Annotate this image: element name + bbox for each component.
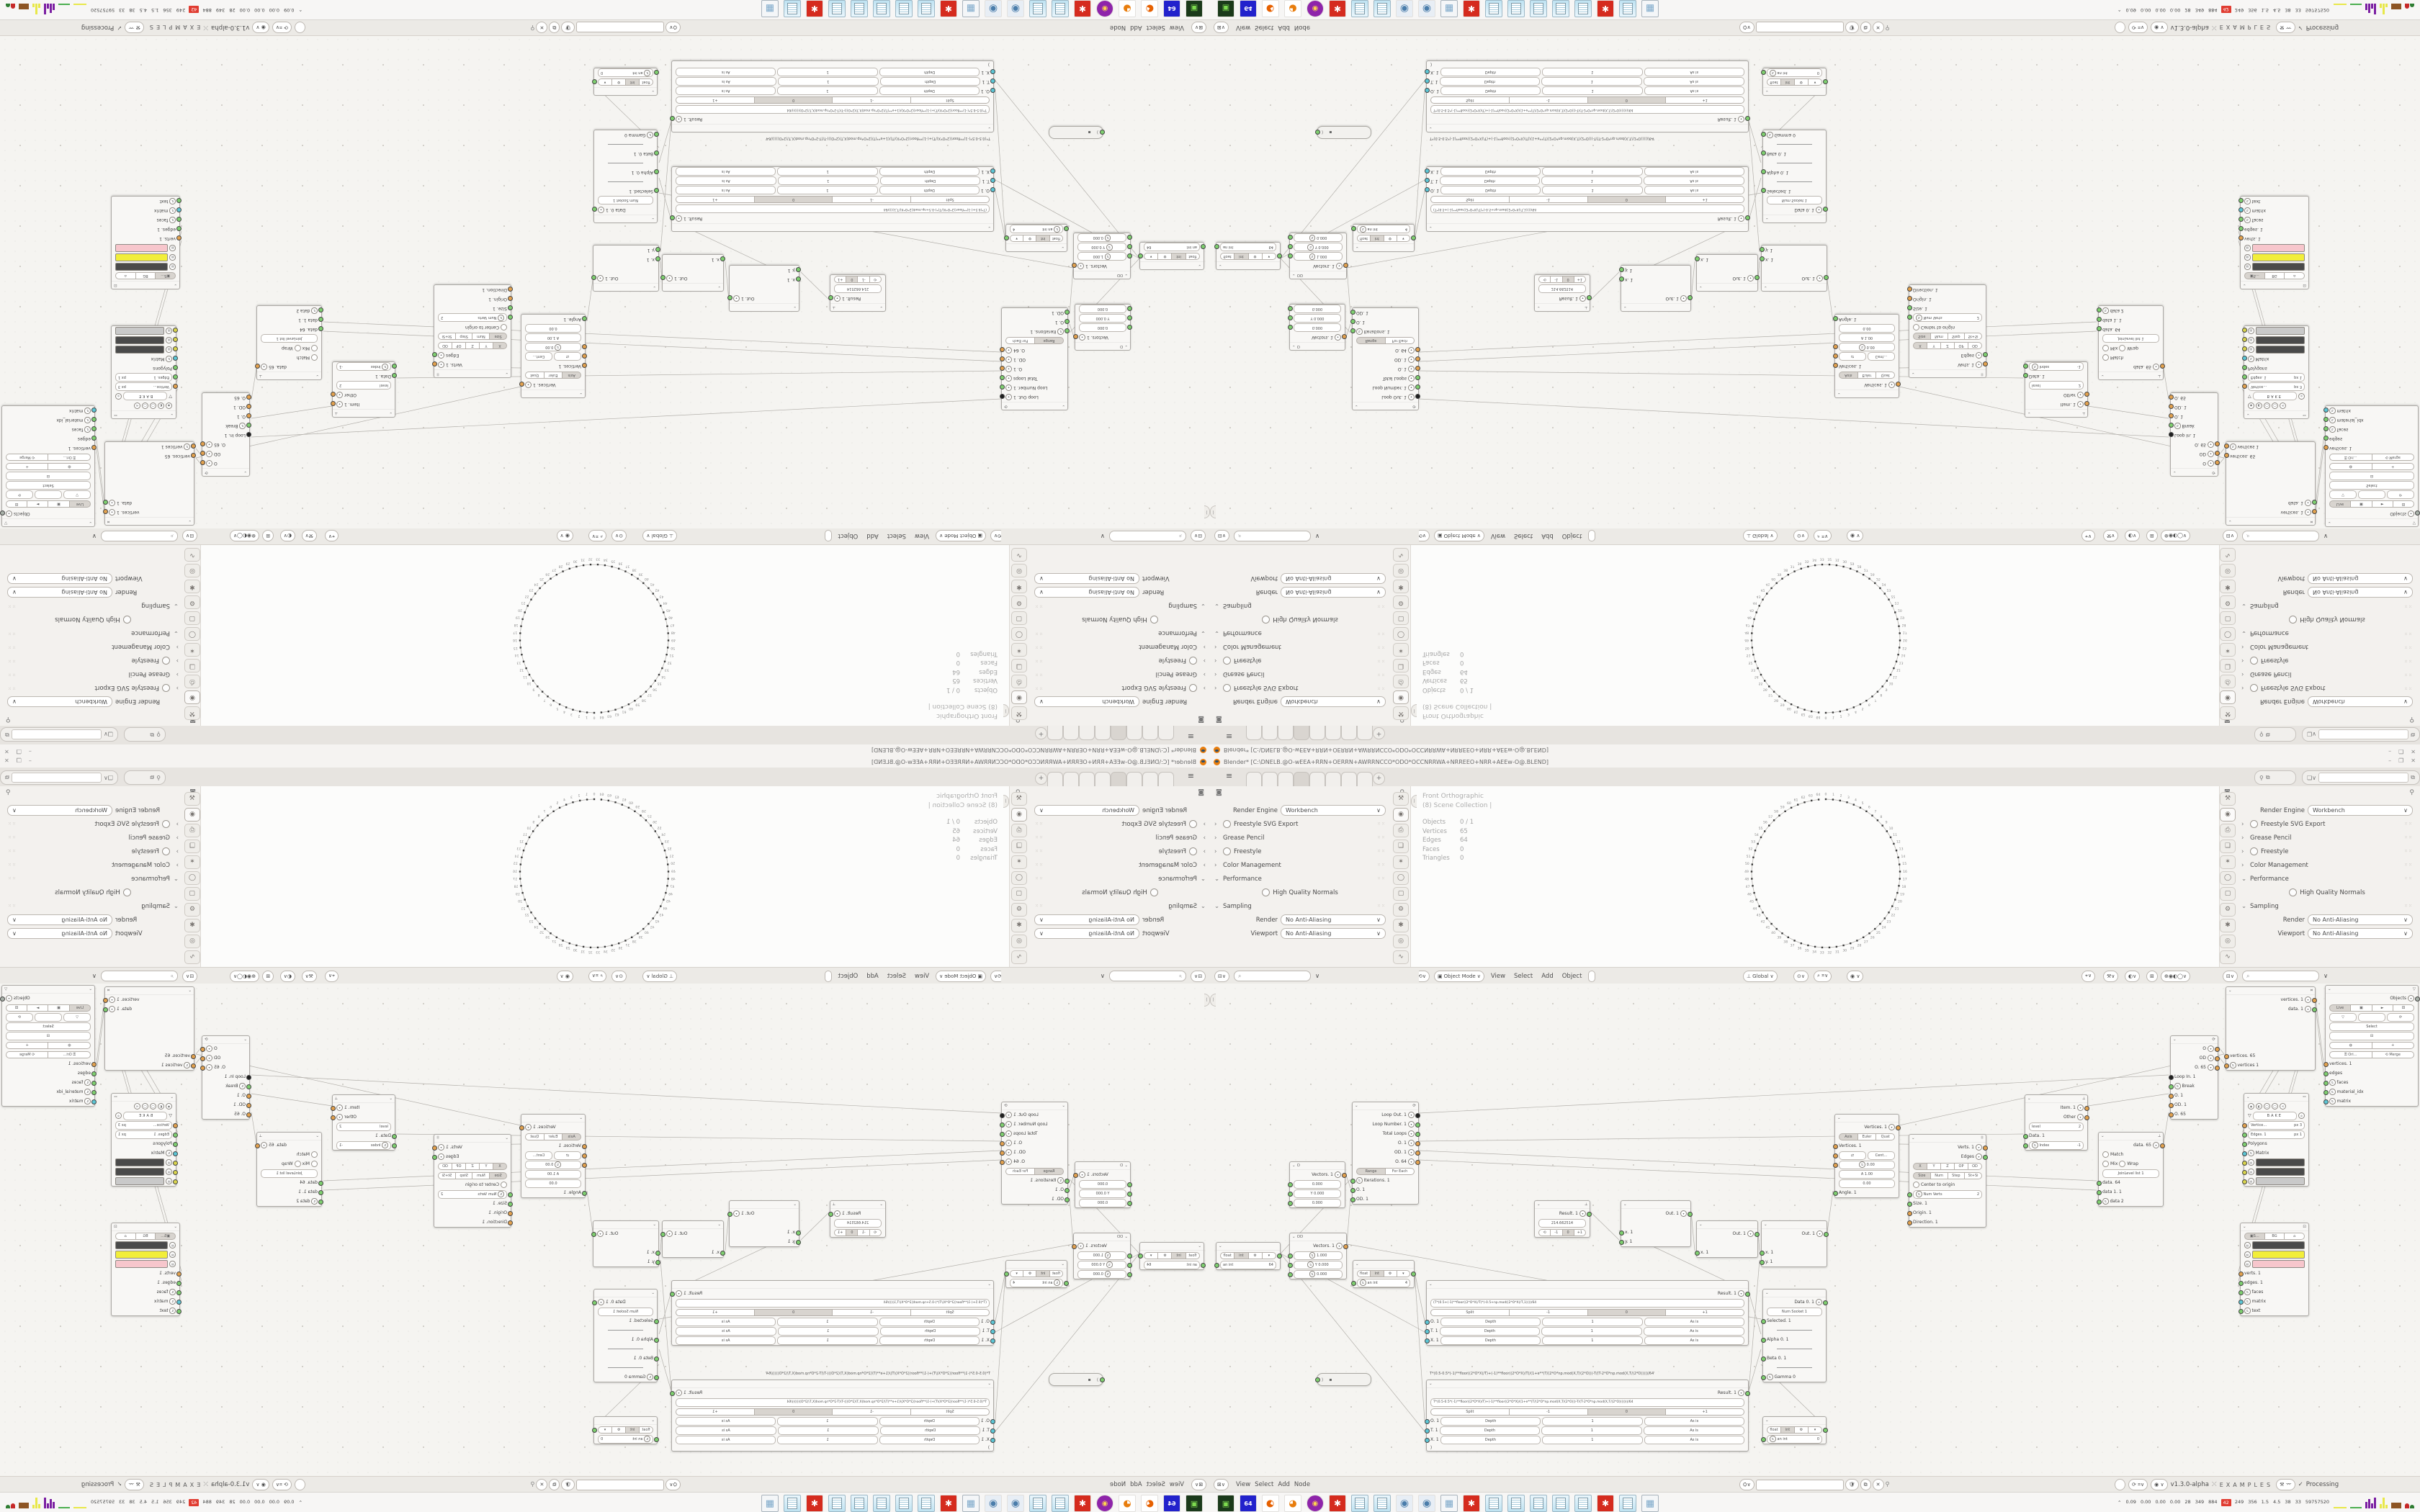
color-swatch[interactable]	[2256, 1177, 2305, 1185]
socket-r[interactable]	[1824, 275, 1829, 280]
widget-pill[interactable]: 1	[1541, 177, 1642, 186]
swatch-options-icon[interactable]: ▤	[166, 337, 173, 343]
properties-tab-icon[interactable]: ✱	[1011, 580, 1027, 593]
socket-l[interactable]	[654, 70, 659, 75]
snap-group[interactable]: ⌕ ⌗∨	[588, 531, 606, 542]
drag-value-icon[interactable]: ⇅	[2230, 1062, 2236, 1068]
button--[interactable]: ⚙	[1157, 1252, 1171, 1259]
node-header[interactable]: ⌄⌗	[105, 987, 194, 995]
collapsed-node[interactable]: ⟩▪	[1317, 1373, 1371, 1386]
widget-pill[interactable]: As is	[1644, 1417, 1744, 1426]
socket-l[interactable]	[2238, 1272, 2244, 1277]
socket-l[interactable]	[1761, 188, 1766, 193]
button-0[interactable]: 0	[754, 97, 833, 104]
collapse-chevron-icon[interactable]: ⌄	[651, 1291, 655, 1295]
drag-value-icon[interactable]: ⇅	[2244, 1308, 2251, 1314]
taskbar-icon-gearred[interactable]	[1074, 0, 1091, 17]
color-swatch[interactable]	[2256, 1158, 2305, 1166]
output-menu-icon[interactable]: ▾	[206, 451, 212, 457]
swatch-options-icon[interactable]: ▤	[2244, 1242, 2251, 1248]
button--1[interactable]: -1	[833, 1408, 911, 1416]
fake-user-icon[interactable]: 🛡	[561, 22, 575, 33]
node-math-power2[interactable]: ⌄Out. 1▾x. 1	[1696, 254, 1758, 292]
socket-l[interactable]	[1288, 1201, 1293, 1206]
socket-r[interactable]	[1000, 366, 1005, 371]
section-collapsed-icon[interactable]: ›	[2241, 848, 2247, 855]
socket-l[interactable]	[1833, 1144, 1838, 1149]
toolbar-icon[interactable]: ◧	[2256, 1103, 2262, 1110]
widget-pill[interactable]: 1	[777, 1336, 877, 1345]
button--1[interactable]: +1	[1574, 276, 1586, 284]
button-int[interactable]: int	[1371, 235, 1384, 243]
node-list-item[interactable]: ⌄⟂Item. 1▾Other▾level2Data. 1⇅Index-1	[332, 361, 395, 418]
socket-r[interactable]	[1745, 1292, 1750, 1297]
collapse-chevron-icon[interactable]: ⌄	[89, 987, 92, 991]
properties-tab-icon[interactable]: ✱	[1393, 919, 1409, 932]
socket-l[interactable]	[191, 1063, 196, 1068]
socket-l[interactable]	[1907, 296, 1912, 301]
socket-r[interactable]	[1415, 1160, 1420, 1165]
socket-l[interactable]	[1833, 354, 1838, 359]
node-list-join[interactable]: ⌄⟂data. 65▾MatchMixWrapJoinLevel list 1d…	[2098, 305, 2164, 380]
socket-l[interactable]	[246, 404, 251, 409]
output-menu-icon[interactable]: ▾	[2077, 392, 2084, 398]
socket-l[interactable]	[173, 384, 178, 389]
widget-pill[interactable]: Depth	[1440, 1436, 1541, 1444]
socket-l[interactable]	[1833, 344, 1838, 349]
output-menu-icon[interactable]: ▾	[2077, 1114, 2084, 1120]
socket-r[interactable]	[103, 509, 108, 514]
socket-l[interactable]	[1907, 305, 1912, 310]
button-od[interactable]: OD	[1968, 1163, 1982, 1170]
button-0[interactable]: 0	[1588, 1309, 1667, 1316]
socket-l[interactable]	[2097, 326, 2102, 331]
button-live[interactable]: Live	[69, 1004, 91, 1012]
socket-l[interactable]	[2238, 1281, 2244, 1286]
widget-pill[interactable]: ⟳	[6, 1013, 33, 1022]
collapse-chevron-icon[interactable]: ⌄	[315, 374, 319, 378]
node-header[interactable]: ⌄O	[1075, 342, 1130, 350]
proportional-group[interactable]: ◉ ∨	[1847, 531, 1863, 542]
output-menu-icon[interactable]: ▾	[1976, 361, 1982, 368]
socket-r[interactable]	[591, 275, 596, 280]
socket-l[interactable]	[654, 188, 659, 193]
taskbar-icon-gearred[interactable]	[1329, 1495, 1346, 1512]
socket-r[interactable]	[1000, 1122, 1005, 1128]
tree-name-field[interactable]	[576, 22, 664, 33]
taskbar-icon-calc[interactable]	[761, 1495, 779, 1512]
button-row[interactable]: Split-10+1	[1430, 1309, 1744, 1316]
node-header[interactable]: ⌄	[1621, 303, 1690, 311]
section-collapsed-icon[interactable]: ›	[2241, 821, 2247, 828]
properties-tab-icon[interactable]: ◉	[184, 690, 200, 704]
number-field[interactable]: A 1.00	[525, 1170, 581, 1179]
socket-l[interactable]	[318, 317, 323, 322]
properties-dropdown[interactable]: Workbench∨	[7, 696, 112, 707]
properties-dropdown[interactable]: Workbench∨	[2308, 805, 2413, 816]
drag-value-icon[interactable]: ⇅	[2244, 217, 2251, 223]
drag-value-icon[interactable]: ⇅	[2248, 1150, 2254, 1156]
socket-l[interactable]	[2238, 217, 2244, 222]
node-menu-select[interactable]: Select	[1144, 24, 1168, 31]
socket-r[interactable]	[1415, 356, 1420, 361]
taskbar-icon-notepad[interactable]	[873, 0, 890, 17]
node-math-multiply[interactable]: ⌄Out. 1▾x. 1y. 1	[593, 1220, 659, 1267]
output-menu-icon[interactable]: ▾	[1079, 334, 1085, 341]
bake-dropdown-icon[interactable]: ▽	[2248, 1113, 2251, 1118]
widget-pill[interactable]: Depth	[879, 186, 980, 195]
taskbar-icon-console[interactable]	[1217, 1495, 1234, 1512]
button-0[interactable]: 0	[754, 1408, 833, 1416]
number-field[interactable]: Y 0.000	[1079, 1189, 1126, 1198]
socket-l[interactable]	[1907, 1192, 1912, 1197]
button--[interactable]: ◍	[2329, 1042, 2372, 1049]
socket-l[interactable]	[582, 1191, 587, 1196]
socket-l[interactable]	[2238, 198, 2244, 203]
socket-r[interactable]	[1688, 295, 1693, 300]
taskbar-icon-cdblue[interactable]	[1396, 1495, 1413, 1512]
socket-l[interactable]	[2242, 1170, 2247, 1175]
close-button[interactable]: ✕	[2411, 757, 2416, 764]
pill-button[interactable]: Num Socket 1	[1767, 1308, 1822, 1316]
taskbar-icon-notepad[interactable]	[1574, 0, 1592, 17]
number-field[interactable]: 0.000	[1079, 1180, 1126, 1189]
labeled-field[interactable]: Edges. 1px 1	[115, 374, 172, 382]
socket-l[interactable]	[318, 1181, 323, 1186]
number-field[interactable]: 0.000	[1294, 324, 1341, 333]
stack-icon[interactable]: ⧉	[150, 774, 154, 781]
widget-pill[interactable]: As is	[1644, 1336, 1744, 1345]
node-uv-connection[interactable]: ⌄⌗vertices. 1▾data. 1▾vertices. 65⇅verti…	[104, 986, 194, 1071]
processing-check-icon[interactable]: ✓	[2298, 24, 2303, 31]
button-row[interactable]: XYZOPOD	[438, 1163, 507, 1170]
node-header[interactable]: ⌄	[594, 215, 657, 222]
taskbar-icon-gearred[interactable]	[1597, 0, 1614, 17]
output-menu-icon[interactable]: ▾	[733, 295, 740, 302]
xray-toggle[interactable]: ⊞	[2146, 531, 2158, 542]
socket-l[interactable]	[508, 1220, 513, 1225]
drag-value-icon[interactable]: ⇅	[85, 1098, 91, 1104]
socket-l[interactable]	[1619, 1230, 1624, 1236]
output-menu-icon[interactable]: ▾	[336, 1114, 343, 1120]
socket-l[interactable]	[173, 328, 178, 333]
properties-dropdown[interactable]: No Anti-Aliasing∨	[1034, 587, 1139, 598]
unlink-icon[interactable]: ✕	[537, 1479, 548, 1490]
color-swatch[interactable]	[115, 336, 165, 344]
button-st-si[interactable]: St+Si	[1965, 1172, 1982, 1179]
output-menu-icon[interactable]: ▾	[109, 996, 115, 1003]
tree-name-field[interactable]	[1756, 22, 1844, 33]
formula-field[interactable]: T*(0.5-0.5*(-1)**floor((2*O*X)/T)+(-1)**…	[676, 106, 990, 114]
socket-r[interactable]	[1754, 275, 1760, 280]
button-num[interactable]: Num	[472, 333, 490, 341]
taskbar-icon-floppy64[interactable]	[1163, 0, 1180, 17]
drag-value-icon[interactable]: ⇅	[2244, 1298, 2251, 1305]
button-range[interactable]: Range	[1356, 1168, 1386, 1175]
output-menu-icon[interactable]: ▾	[2208, 1055, 2214, 1061]
output-menu-icon[interactable]: ▾	[2208, 460, 2214, 467]
drag-value-icon[interactable]: ⇅	[1360, 1279, 1366, 1286]
bake-button[interactable]: BAKE	[123, 1112, 167, 1120]
socket-l[interactable]	[1201, 244, 1206, 249]
window-tab[interactable]	[1309, 772, 1325, 786]
labeled-field[interactable]: ⇅Num Verts2	[438, 314, 507, 323]
socket-r[interactable]	[1823, 79, 1828, 84]
output-menu-icon[interactable]: ▾	[1005, 1121, 1012, 1128]
drag-value-icon[interactable]: ⇅	[170, 1298, 176, 1305]
output-menu-icon[interactable]: ▾	[1408, 1130, 1415, 1137]
socket-r[interactable]	[1415, 375, 1420, 380]
node-number-4[interactable]: ⌄floatint⚙▾⇅an int4	[1353, 1260, 1415, 1288]
button-for-each[interactable]: For Each	[1386, 338, 1415, 345]
socket-r[interactable]	[1983, 1146, 1988, 1151]
drag-value-icon[interactable]: ⇅	[1309, 1271, 1316, 1277]
socket-l[interactable]	[654, 1375, 659, 1380]
socket-l[interactable]	[654, 150, 659, 156]
widget-pill[interactable]: As is	[676, 1327, 776, 1336]
unlink-icon[interactable]: ✕	[1873, 22, 1884, 33]
socket-l[interactable]	[654, 132, 659, 137]
collapse-chevron-icon[interactable]: ⌄	[1429, 1282, 1433, 1287]
socket-l[interactable]	[2224, 1063, 2229, 1068]
properties-tab-icon[interactable]: ❏	[2220, 659, 2236, 672]
shading-mode-group[interactable]: ⊕◉◐◯∨	[230, 971, 259, 982]
taskbar-icon-notepad[interactable]	[1485, 1495, 1502, 1512]
button--[interactable]: ⌂	[2285, 1233, 2305, 1240]
socket-l[interactable]	[2238, 1300, 2244, 1305]
collapse-chevron-icon[interactable]: ⌄	[1292, 1235, 1296, 1239]
editor-type-dropdown[interactable]: ⊟∨	[1191, 531, 1206, 542]
output-menu-icon[interactable]: ▾	[1336, 1243, 1343, 1249]
output-menu-icon[interactable]: ▾	[1408, 375, 1415, 382]
swatch-options-icon[interactable]: ▤	[2244, 264, 2251, 270]
node-header[interactable]: ⌄	[1216, 1243, 1280, 1251]
node-header[interactable]: ⌄⠿	[434, 1135, 511, 1143]
node-input-switch[interactable]: ⌄Data 0. 1▾Num Socket 1Selected. 1Alpha …	[1762, 130, 1827, 223]
socket-r[interactable]	[1342, 334, 1347, 339]
socket-r[interactable]	[1415, 347, 1420, 352]
properties-tab-icon[interactable]: ◎	[1011, 935, 1027, 948]
socket-left[interactable]	[1100, 1377, 1105, 1382]
labeled-field[interactable]: ⇅an int0	[598, 69, 653, 78]
checkbox[interactable]	[2102, 1151, 2109, 1158]
socket-l[interactable]	[1288, 1272, 1293, 1277]
widget-pill[interactable]: 1	[777, 68, 877, 77]
bake-options-icon[interactable]: ◎	[115, 1112, 122, 1119]
properties-tab-icon[interactable]: ⚙	[1393, 595, 1409, 609]
socket-r[interactable]	[1587, 1212, 1592, 1217]
node-formula-2[interactable]: ⌄Result. 1▾T*(0.5-0.5*(-1)**floor((2*O*X…	[1426, 60, 1749, 132]
socket-r[interactable]	[1000, 394, 1005, 399]
toolbar-icon[interactable]: ◯	[2264, 1103, 2270, 1110]
formula-field[interactable]: (T*(0.5+(-1)**floor((2*O*X)/T)*(-0.5+np.…	[676, 1299, 990, 1308]
node-list-join[interactable]: ⌄⟂data. 65▾MatchMixWrapJoinLevel list 1d…	[256, 1132, 322, 1207]
pin-icon[interactable]: ⚲	[2409, 716, 2414, 723]
properties-tab-icon[interactable]: ▢	[1011, 611, 1027, 625]
taskbar-icon-cdblue[interactable]	[985, 1495, 1002, 1512]
socket-l[interactable]	[2238, 1290, 2244, 1295]
collapse-chevron-icon[interactable]: ⌄	[1837, 1116, 1841, 1120]
collapse-chevron-icon[interactable]: ⌄	[2243, 1225, 2246, 1229]
close-button[interactable]: ✕	[2411, 748, 2416, 755]
widget-pill[interactable]: As is	[1644, 1327, 1744, 1336]
socket-l[interactable]	[173, 337, 178, 342]
drag-value-icon[interactable]: ⇅	[555, 1161, 561, 1168]
node-number-result[interactable]: ⌄⟂Result. 1▾214.662514⟲-10+1	[830, 1200, 886, 1238]
widget-pill[interactable]: 1	[777, 1318, 877, 1326]
pivot-dropdown[interactable]: ⊙∨	[1793, 971, 1809, 982]
button--1[interactable]: +1	[1666, 197, 1744, 204]
properties-tab-icon[interactable]: ❏	[1011, 840, 1027, 853]
socket-l[interactable]	[1760, 256, 1765, 261]
button-float[interactable]: float	[1767, 1426, 1781, 1434]
viewport-menu-add[interactable]: Add	[864, 533, 880, 540]
collapse-chevron-icon[interactable]: ⌄	[2101, 374, 2105, 378]
socket-l[interactable]	[796, 1240, 801, 1245]
widget-pill[interactable]: 1	[777, 186, 877, 195]
socket-r[interactable]	[1000, 384, 1005, 390]
node-number-0[interactable]: ⌄floatint⚙▾⇅an int0	[593, 68, 658, 96]
taskbar-icon-cdblue[interactable]	[1007, 0, 1024, 17]
socket-r[interactable]	[432, 352, 437, 357]
widget-pill[interactable]	[35, 491, 62, 500]
socket-l[interactable]	[246, 1084, 251, 1089]
widget-pill[interactable]: 1	[1542, 186, 1642, 195]
color-swatch[interactable]	[115, 253, 169, 261]
color-swatch[interactable]	[2256, 327, 2305, 335]
window-tab[interactable]	[1309, 726, 1325, 740]
socket-l[interactable]	[2169, 423, 2174, 428]
node-header[interactable]: ⌄	[1006, 1261, 1067, 1269]
collapse-chevron-icon[interactable]: ⌄	[2228, 519, 2232, 523]
socket-l[interactable]	[318, 326, 323, 331]
button--1[interactable]: -1	[1551, 1229, 1562, 1236]
socket-r[interactable]	[670, 116, 675, 121]
checkbox[interactable]	[2102, 345, 2109, 351]
number-field[interactable]: 0.000	[1294, 1180, 1341, 1189]
properties-tab-icon[interactable]: ⚒	[2220, 792, 2236, 806]
section-expanded-icon[interactable]: ⌄	[1214, 876, 1220, 883]
button-row[interactable]: floatint⚙▾	[1357, 235, 1410, 243]
drag-value-icon[interactable]: ⇅	[1309, 253, 1316, 260]
section-expanded-icon[interactable]: ⌄	[1200, 903, 1206, 910]
widget-pill[interactable]: As is	[1644, 1436, 1744, 1444]
window-tab[interactable]	[1063, 726, 1079, 740]
pill-button[interactable]: ⊟	[2329, 472, 2414, 481]
properties-tab-icon[interactable]: ✶	[1011, 855, 1027, 869]
editor-type-dropdown[interactable]: ⊟∨	[2223, 531, 2238, 542]
socket-r[interactable]	[200, 1066, 205, 1071]
widget-pill[interactable]: As is	[1644, 1426, 1744, 1435]
node-math-multiply[interactable]: ⌄Out. 1▾x. 1y. 1	[593, 245, 659, 292]
section-toggle[interactable]	[1189, 657, 1197, 665]
widget-pill[interactable]: 1	[778, 1327, 879, 1336]
output-menu-icon[interactable]: ▾	[1005, 394, 1012, 400]
number-field[interactable]: 0.000	[1294, 1199, 1341, 1207]
swatch-options-icon[interactable]: ▤	[2248, 346, 2254, 353]
node-loop-out[interactable]: ⌄⟳O▾OD▾O. 65▾Loop In. 1⇅BreakO. 1OD. 1O.…	[202, 1035, 250, 1120]
button-row[interactable]: Split-10+1	[1430, 1408, 1744, 1416]
number-field[interactable]: A 1.00	[1839, 334, 1895, 343]
section-toggle[interactable]	[2250, 657, 2258, 665]
socket-l[interactable]	[173, 1170, 178, 1175]
properties-tab-icon[interactable]: ◎	[1011, 564, 1027, 577]
widget-pill[interactable]: As is	[1644, 68, 1744, 77]
socket-l[interactable]	[2023, 1143, 2028, 1148]
socket-r[interactable]	[200, 451, 205, 456]
output-menu-icon[interactable]: ▾	[1408, 1112, 1415, 1118]
collapse-chevron-icon[interactable]: ⌄	[1198, 1244, 1201, 1248]
socket-l[interactable]	[176, 1300, 181, 1305]
widget-pill[interactable]: 1	[1541, 1327, 1642, 1336]
button-split[interactable]: Split	[910, 1408, 990, 1416]
snap-group[interactable]: ⌕ ⌗∨	[1814, 531, 1832, 542]
collapse-chevron-icon[interactable]: ⌄	[1198, 264, 1201, 268]
window-tab[interactable]	[1325, 772, 1341, 786]
pin-icon[interactable]: ⚲	[6, 789, 11, 796]
drag-value-icon[interactable]: ⇅	[1916, 315, 1922, 321]
taskbar-icon-gearred[interactable]	[940, 0, 957, 17]
node-math-divide[interactable]: ⌄Out. 1▾x. 1y. 1	[1621, 1200, 1691, 1247]
socket-l[interactable]	[1065, 328, 1070, 333]
node-header[interactable]: ⌄⠿	[434, 369, 511, 377]
button--merge[interactable]: ⟲ Merge	[6, 454, 48, 462]
socket-l[interactable]	[246, 423, 251, 428]
widget-pill[interactable]: 1	[1541, 78, 1642, 86]
orientation-dropdown[interactable]: ⊥Global∨	[642, 971, 677, 982]
button--[interactable]: ⚙	[1023, 1270, 1036, 1277]
button-x[interactable]: X	[1913, 343, 1927, 350]
toolbar-icon[interactable]: ◯	[150, 1103, 156, 1110]
number-field[interactable]: A 1.00	[525, 334, 581, 343]
socket-r[interactable]	[432, 1155, 437, 1160]
button--[interactable]: ▾	[598, 79, 611, 86]
node-header[interactable]: ⌄	[1621, 1201, 1690, 1209]
button-row[interactable]: SizeNumStepSt+Si	[1913, 333, 1982, 341]
taskbar-icon-notepad[interactable]	[1507, 0, 1525, 17]
socket-r[interactable]	[1415, 1122, 1420, 1128]
widget-pill[interactable]: Cent…	[1868, 1151, 1895, 1160]
button-x[interactable]: X	[1913, 1163, 1927, 1170]
node-menu-select[interactable]: Select	[1252, 1481, 1276, 1488]
drag-value-icon[interactable]: ⇅	[1309, 1252, 1316, 1259]
socket-l[interactable]	[2169, 1094, 2174, 1099]
socket-r[interactable]	[1343, 1244, 1348, 1249]
button--[interactable]: ▾	[1010, 235, 1023, 243]
labeled-field[interactable]: ⇅Num Verts2	[438, 1190, 507, 1199]
socket-r[interactable]	[1138, 1254, 1143, 1259]
node-formula-1[interactable]: ⌄Result. 1▾(T*(0.5+(-1)**floor((2*O*X)/T…	[1426, 166, 1749, 232]
pin-icon[interactable]: ⚲	[2259, 732, 2264, 738]
output-menu-icon[interactable]: ▾	[676, 1290, 682, 1297]
taskbar-icon-cdblue[interactable]	[1418, 1495, 1435, 1512]
socket-r[interactable]	[1000, 1151, 1005, 1156]
pill-button[interactable]: ⊟	[6, 472, 91, 481]
node-vector-in-o[interactable]: ⌄OVectors. 1▾0.000Y 0.0000.000	[1075, 1161, 1131, 1208]
properties-dropdown[interactable]: Workbench∨	[1034, 696, 1139, 707]
button-row[interactable]: ⟲-10+1	[1538, 276, 1586, 284]
button-y[interactable]: Y	[1927, 343, 1941, 350]
drag-value-icon[interactable]: ⇅	[1916, 1191, 1922, 1197]
tools-button-group[interactable]: ⚒ ⌤	[125, 1479, 144, 1490]
widget-pill[interactable]: Depth	[880, 78, 981, 86]
formula-field[interactable]: (T*(0.5+(-1)**floor((2*O*X)/T)*(-0.5+np.…	[1430, 205, 1744, 214]
socket-r[interactable]	[670, 1292, 675, 1297]
taskbar-icon-notepad[interactable]	[851, 0, 868, 17]
socket-r[interactable]	[660, 275, 665, 280]
bake-dropdown-icon[interactable]: ▽	[2248, 394, 2251, 399]
collapse-chevron-icon[interactable]: ⌄	[188, 989, 192, 993]
